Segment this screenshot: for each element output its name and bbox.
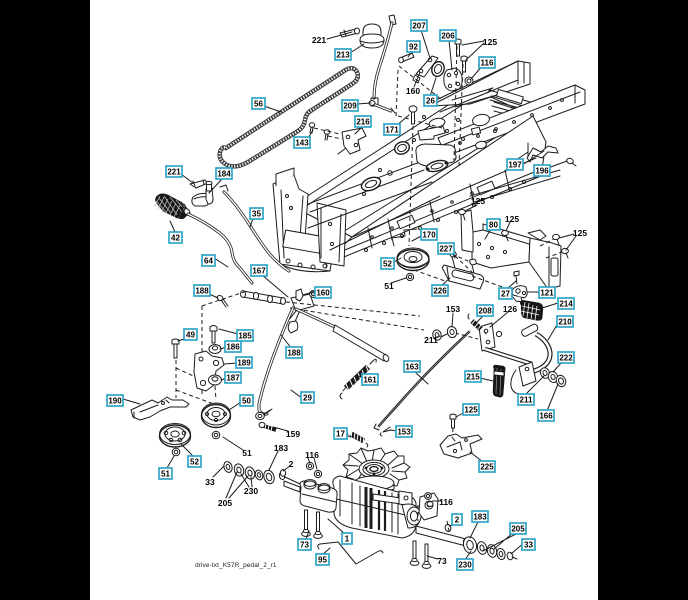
svg-text:185: 185 xyxy=(238,332,252,341)
svg-text:184: 184 xyxy=(217,170,231,179)
svg-text:116: 116 xyxy=(481,59,494,68)
svg-text:161: 161 xyxy=(363,376,377,385)
svg-text:205: 205 xyxy=(511,525,525,534)
svg-text:95: 95 xyxy=(318,556,327,565)
svg-text:186: 186 xyxy=(226,343,240,352)
svg-text:206: 206 xyxy=(441,32,455,41)
svg-text:27: 27 xyxy=(501,290,510,299)
svg-text:222: 222 xyxy=(559,354,573,363)
svg-text:213: 213 xyxy=(336,51,350,60)
svg-text:73: 73 xyxy=(300,541,309,550)
svg-text:125: 125 xyxy=(464,406,478,415)
svg-text:163: 163 xyxy=(405,363,419,372)
svg-text:188: 188 xyxy=(287,349,301,358)
svg-text:190: 190 xyxy=(108,397,122,406)
svg-text:170: 170 xyxy=(422,231,436,240)
svg-text:drive-txt_K57R_pedal_2_r1: drive-txt_K57R_pedal_2_r1 xyxy=(195,562,277,569)
svg-text:52: 52 xyxy=(383,260,392,269)
svg-text:125: 125 xyxy=(573,228,587,238)
svg-text:116: 116 xyxy=(439,497,453,507)
svg-text:56: 56 xyxy=(254,100,263,109)
svg-text:171: 171 xyxy=(385,126,399,135)
svg-text:230: 230 xyxy=(244,486,258,496)
svg-text:159: 159 xyxy=(286,429,300,439)
svg-text:230: 230 xyxy=(458,561,472,570)
svg-text:1: 1 xyxy=(345,535,350,544)
svg-text:92: 92 xyxy=(409,43,418,52)
svg-text:183: 183 xyxy=(473,513,487,522)
svg-text:143: 143 xyxy=(295,139,309,148)
svg-text:160: 160 xyxy=(316,289,330,298)
svg-text:49: 49 xyxy=(186,331,195,340)
svg-text:2: 2 xyxy=(289,459,294,469)
svg-text:51: 51 xyxy=(384,281,394,291)
svg-text:125: 125 xyxy=(471,196,485,206)
svg-text:51: 51 xyxy=(242,448,252,458)
svg-text:73: 73 xyxy=(437,556,447,566)
svg-text:125: 125 xyxy=(483,37,497,47)
svg-text:215: 215 xyxy=(466,373,480,382)
svg-text:33: 33 xyxy=(205,477,215,487)
svg-text:221: 221 xyxy=(312,35,326,45)
svg-text:29: 29 xyxy=(303,394,312,403)
svg-text:116: 116 xyxy=(305,450,319,460)
svg-text:26: 26 xyxy=(426,97,435,106)
svg-text:52: 52 xyxy=(190,458,199,467)
svg-text:35: 35 xyxy=(252,210,261,219)
svg-text:17: 17 xyxy=(336,430,345,439)
svg-text:216: 216 xyxy=(356,118,370,127)
svg-text:205: 205 xyxy=(218,498,232,508)
svg-text:51: 51 xyxy=(161,470,170,479)
svg-text:121: 121 xyxy=(540,289,554,298)
svg-text:42: 42 xyxy=(171,234,180,243)
svg-text:125: 125 xyxy=(505,214,519,224)
svg-text:64: 64 xyxy=(204,257,213,266)
svg-text:227: 227 xyxy=(439,245,453,254)
svg-text:187: 187 xyxy=(226,374,240,383)
svg-text:153: 153 xyxy=(397,428,411,437)
svg-text:214: 214 xyxy=(559,300,573,309)
svg-text:33: 33 xyxy=(524,541,533,550)
svg-text:211: 211 xyxy=(520,396,533,405)
svg-text:225: 225 xyxy=(480,463,494,472)
svg-text:50: 50 xyxy=(242,397,251,406)
svg-text:2: 2 xyxy=(455,516,460,525)
svg-text:188: 188 xyxy=(195,287,209,296)
svg-text:209: 209 xyxy=(343,102,357,111)
svg-text:153: 153 xyxy=(446,304,460,314)
svg-text:160: 160 xyxy=(406,86,420,96)
svg-text:207: 207 xyxy=(412,22,426,31)
svg-text:208: 208 xyxy=(478,307,492,316)
svg-text:211: 211 xyxy=(424,335,438,345)
svg-text:166: 166 xyxy=(539,412,553,421)
svg-text:226: 226 xyxy=(433,287,447,296)
svg-text:189: 189 xyxy=(237,359,251,368)
svg-text:196: 196 xyxy=(535,167,549,176)
svg-text:183: 183 xyxy=(274,443,288,453)
svg-text:197: 197 xyxy=(508,161,522,170)
svg-text:126: 126 xyxy=(503,304,517,314)
svg-text:221: 221 xyxy=(167,168,181,177)
svg-text:167: 167 xyxy=(252,267,266,276)
svg-text:80: 80 xyxy=(489,221,498,230)
svg-text:210: 210 xyxy=(558,318,572,327)
